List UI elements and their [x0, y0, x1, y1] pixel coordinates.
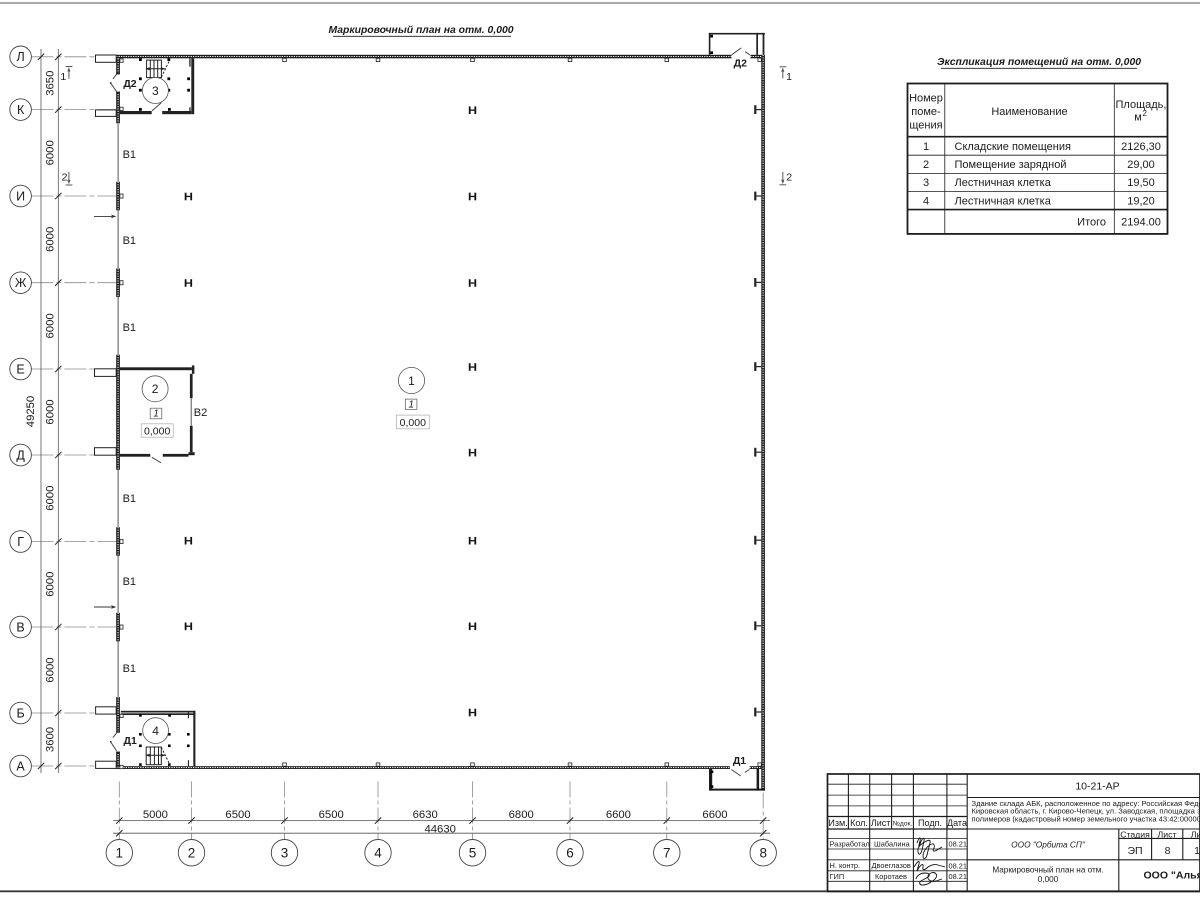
- svg-text:6000: 6000: [45, 140, 57, 165]
- svg-text:В1: В1: [123, 235, 136, 247]
- svg-text:Лист: Лист: [871, 818, 891, 828]
- svg-text:5: 5: [469, 846, 477, 861]
- svg-text:6000: 6000: [45, 227, 57, 252]
- svg-text:2194.00: 2194.00: [1121, 217, 1161, 229]
- svg-text:Подп.: Подп.: [918, 818, 942, 828]
- svg-text:Дата: Дата: [947, 818, 967, 828]
- svg-text:1: 1: [786, 71, 792, 83]
- svg-text:2: 2: [62, 171, 68, 183]
- svg-text:49250: 49250: [25, 396, 37, 427]
- svg-text:0,000: 0,000: [144, 426, 170, 438]
- svg-text:Е: Е: [16, 362, 24, 376]
- svg-text:м: м: [1134, 112, 1142, 124]
- svg-text:29,00: 29,00: [1127, 159, 1155, 171]
- svg-text:Стадия: Стадия: [1120, 829, 1150, 839]
- svg-text:Кол.: Кол.: [850, 818, 868, 828]
- svg-text:поме-: поме-: [911, 106, 941, 118]
- svg-text:3: 3: [152, 84, 159, 98]
- svg-text:6630: 6630: [413, 809, 438, 821]
- svg-text:4: 4: [152, 724, 159, 738]
- svg-text:В1: В1: [123, 576, 136, 588]
- svg-text:2: 2: [923, 159, 929, 171]
- svg-text:Изм.: Изм.: [828, 818, 847, 828]
- svg-text:1: 1: [408, 399, 414, 410]
- svg-text:Итого: Итого: [1077, 217, 1106, 229]
- svg-text:2: 2: [152, 382, 159, 396]
- svg-text:В1: В1: [123, 493, 136, 505]
- svg-text:Лестничная клетка: Лестничная клетка: [955, 177, 1052, 189]
- svg-text:В: В: [16, 620, 24, 634]
- svg-text:В1: В1: [123, 149, 136, 161]
- svg-text:Д1: Д1: [733, 755, 746, 767]
- svg-text:2: 2: [1143, 109, 1148, 118]
- svg-text:Двоеглазов: Двоеглазов: [872, 861, 911, 870]
- svg-text:Помещение зарядной: Помещение зарядной: [955, 159, 1067, 171]
- svg-text:6000: 6000: [45, 313, 57, 338]
- svg-text:Н. контр.: Н. контр.: [830, 861, 861, 870]
- svg-text:6000: 6000: [45, 572, 57, 597]
- svg-text:Маркировочный план на отм. 0,0: Маркировочный план на отм. 0,000: [328, 25, 513, 36]
- svg-text:6500: 6500: [319, 809, 344, 821]
- svg-text:19,20: 19,20: [1127, 195, 1155, 207]
- svg-text:6000: 6000: [45, 657, 57, 682]
- svg-text:Л: Л: [16, 50, 24, 64]
- svg-text:Наименование: Наименование: [991, 106, 1067, 118]
- svg-text:Лестничная клетка: Лестничная клетка: [955, 195, 1052, 207]
- svg-text:Площадь,: Площадь,: [1116, 99, 1167, 111]
- svg-text:3: 3: [281, 846, 289, 861]
- svg-text:5000: 5000: [143, 809, 168, 821]
- svg-text:2126,30: 2126,30: [1121, 141, 1161, 153]
- svg-text:Разработал: Разработал: [830, 839, 870, 848]
- svg-text:6800: 6800: [509, 809, 534, 821]
- svg-text:К: К: [17, 103, 25, 117]
- svg-text:6500: 6500: [225, 809, 250, 821]
- svg-text:Д2: Д2: [123, 78, 136, 90]
- svg-text:Г: Г: [17, 535, 24, 549]
- svg-text:Шабалина: Шабалина: [874, 839, 911, 848]
- svg-text:7: 7: [663, 846, 671, 861]
- svg-text:ГИП: ГИП: [830, 872, 845, 881]
- svg-text:10-21-АР: 10-21-АР: [1075, 780, 1119, 792]
- svg-text:Д1: Д1: [124, 735, 137, 747]
- svg-text:08.21: 08.21: [949, 872, 968, 881]
- svg-text:ООО "Орбита СП": ООО "Орбита СП": [1011, 840, 1086, 850]
- svg-text:1: 1: [923, 141, 929, 153]
- svg-text:3600: 3600: [45, 727, 57, 752]
- svg-text:В2: В2: [194, 407, 207, 419]
- svg-text:А: А: [16, 759, 25, 773]
- svg-text:1: 1: [1194, 845, 1200, 857]
- svg-text:№док.: №док.: [893, 820, 913, 827]
- svg-text:1: 1: [60, 71, 66, 83]
- svg-text:Д: Д: [16, 448, 25, 462]
- svg-text:Коротаев: Коротаев: [875, 872, 907, 881]
- svg-text:44630: 44630: [424, 823, 455, 835]
- svg-text:4: 4: [923, 195, 929, 207]
- svg-text:В1: В1: [123, 663, 136, 675]
- svg-text:3: 3: [923, 177, 929, 189]
- svg-text:1: 1: [408, 374, 415, 388]
- svg-text:ООО "Альянс: ООО "Альянс: [1144, 869, 1200, 881]
- svg-text:Б: Б: [16, 706, 24, 720]
- svg-text:19,50: 19,50: [1127, 177, 1155, 189]
- svg-text:6000: 6000: [45, 399, 57, 424]
- svg-text:Лист: Лист: [1158, 829, 1177, 839]
- svg-text:В1: В1: [123, 322, 136, 334]
- svg-text:Ж: Ж: [15, 276, 27, 290]
- svg-text:Д2: Д2: [734, 57, 747, 69]
- svg-text:Складские помещения: Складские помещения: [955, 141, 1071, 153]
- svg-text:08.21: 08.21: [949, 861, 968, 870]
- svg-text:0,000: 0,000: [400, 417, 426, 429]
- svg-text:2: 2: [786, 171, 792, 183]
- svg-text:1: 1: [116, 846, 124, 861]
- svg-text:6600: 6600: [702, 809, 727, 821]
- svg-text:Ли: Ли: [1191, 829, 1200, 839]
- svg-text:6: 6: [566, 846, 574, 861]
- svg-text:3650: 3650: [45, 71, 57, 96]
- svg-text:6600: 6600: [606, 809, 631, 821]
- svg-text:Экспликация помещений на отм.: Экспликация помещений на отм. 0,000: [937, 57, 1141, 68]
- svg-text:щения: щения: [909, 120, 942, 132]
- svg-text:6000: 6000: [45, 486, 57, 511]
- svg-text:8: 8: [1165, 845, 1171, 857]
- svg-text:2: 2: [188, 846, 196, 861]
- svg-text:И: И: [16, 189, 25, 203]
- svg-text:0,000: 0,000: [1038, 875, 1059, 884]
- svg-text:4: 4: [374, 846, 382, 861]
- svg-text:1: 1: [153, 409, 159, 420]
- svg-text:8: 8: [759, 846, 767, 861]
- svg-text:Маркировочный план на отм.: Маркировочный план на отм.: [992, 866, 1103, 875]
- svg-text:полимеров (кадастровый номер з: полимеров (кадастровый номер земельного …: [972, 814, 1200, 823]
- svg-text:Номер: Номер: [909, 93, 943, 105]
- svg-text:ЭП: ЭП: [1127, 845, 1142, 857]
- svg-text:08.21: 08.21: [949, 840, 968, 849]
